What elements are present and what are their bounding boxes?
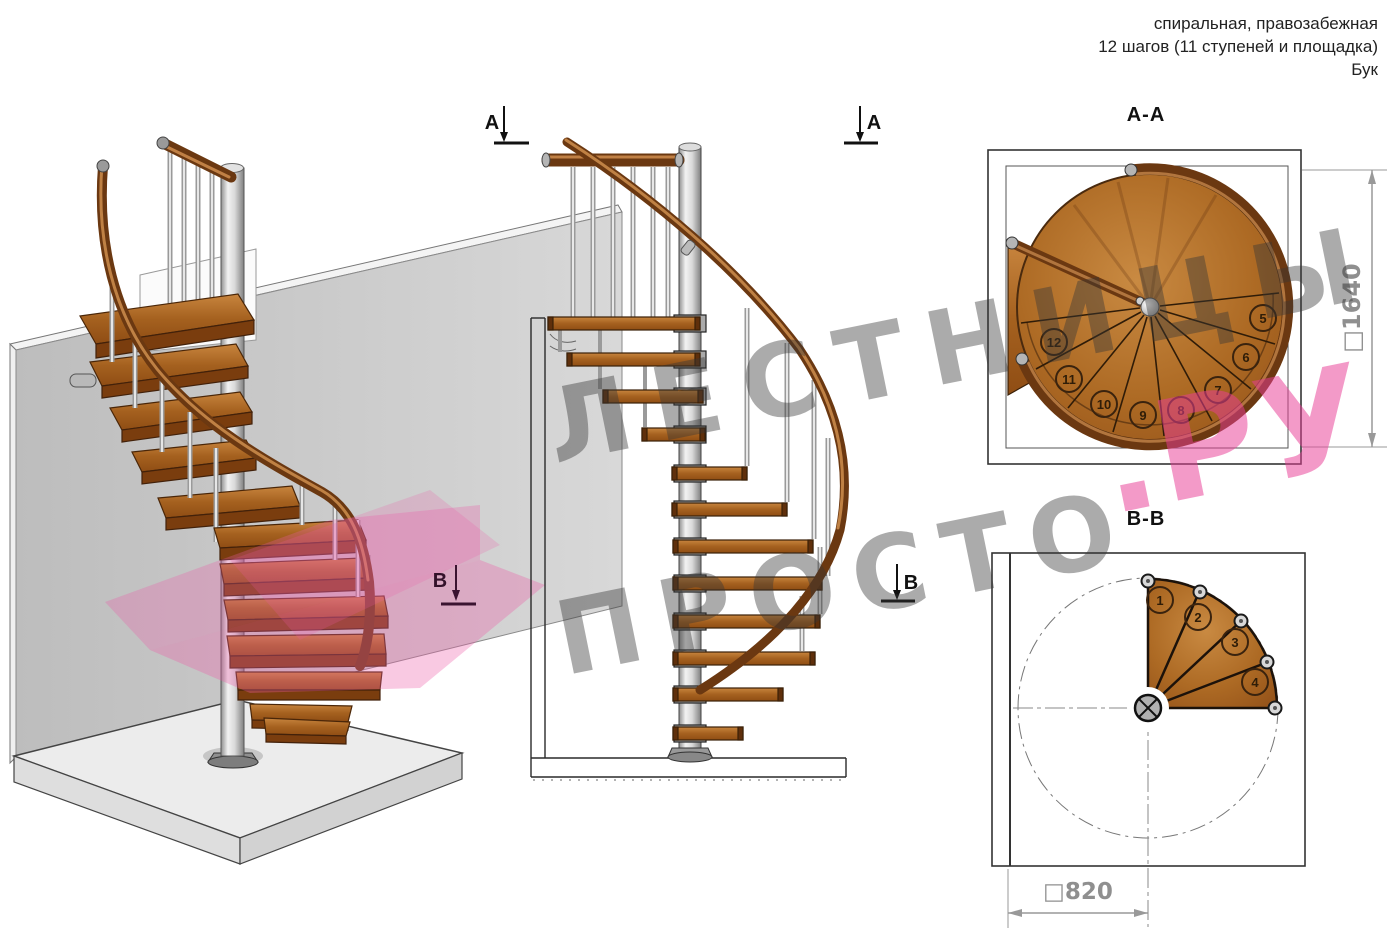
section-aa-title: А-А	[1096, 104, 1196, 127]
handrail-wall-bracket	[70, 374, 96, 387]
aa-step-number: 11	[1055, 365, 1083, 393]
bb-step-number: 2	[1184, 603, 1212, 631]
aa-step-number: 5	[1249, 304, 1277, 332]
bb-step-number: 4	[1241, 668, 1269, 696]
section-bb-title: В-В	[1096, 508, 1196, 531]
bb-center-pole	[1135, 695, 1161, 721]
dimension-aa-1640: □1640	[1338, 248, 1366, 368]
view-3d	[10, 137, 622, 864]
bb-step-number: 3	[1221, 628, 1249, 656]
spec-line-material: Бук	[1098, 58, 1378, 81]
staircase-technical-drawing	[0, 0, 1400, 939]
elevation-balusters-right	[747, 308, 828, 651]
aa-step-number: 12	[1040, 328, 1068, 356]
drawing-sheet: спиральная, правозабежная 12 шагов (11 с…	[0, 0, 1400, 939]
aa-step-number: 9	[1129, 401, 1157, 429]
spec-line-type: спиральная, правозабежная	[1098, 12, 1378, 35]
marker-a-left: А	[480, 112, 504, 135]
bb-step-number: 1	[1146, 586, 1174, 614]
aa-step-number: 8	[1167, 396, 1195, 424]
aa-step-number: 10	[1090, 390, 1118, 418]
aa-center-pole	[1141, 298, 1159, 316]
marker-a-right: А	[862, 112, 886, 135]
aa-step-number: 7	[1204, 376, 1232, 404]
elevation-top-rail	[542, 153, 683, 167]
dimension-bb-820: □820	[1028, 879, 1128, 905]
wall-left-edge	[10, 344, 16, 763]
spec-line-steps: 12 шагов (11 ступеней и площадка)	[1098, 35, 1378, 58]
marker-b-left: В	[428, 570, 452, 593]
spec-header: спиральная, правозабежная 12 шагов (11 с…	[1098, 12, 1378, 81]
aa-step-number: 6	[1232, 343, 1260, 371]
marker-b-right: В	[899, 572, 923, 595]
